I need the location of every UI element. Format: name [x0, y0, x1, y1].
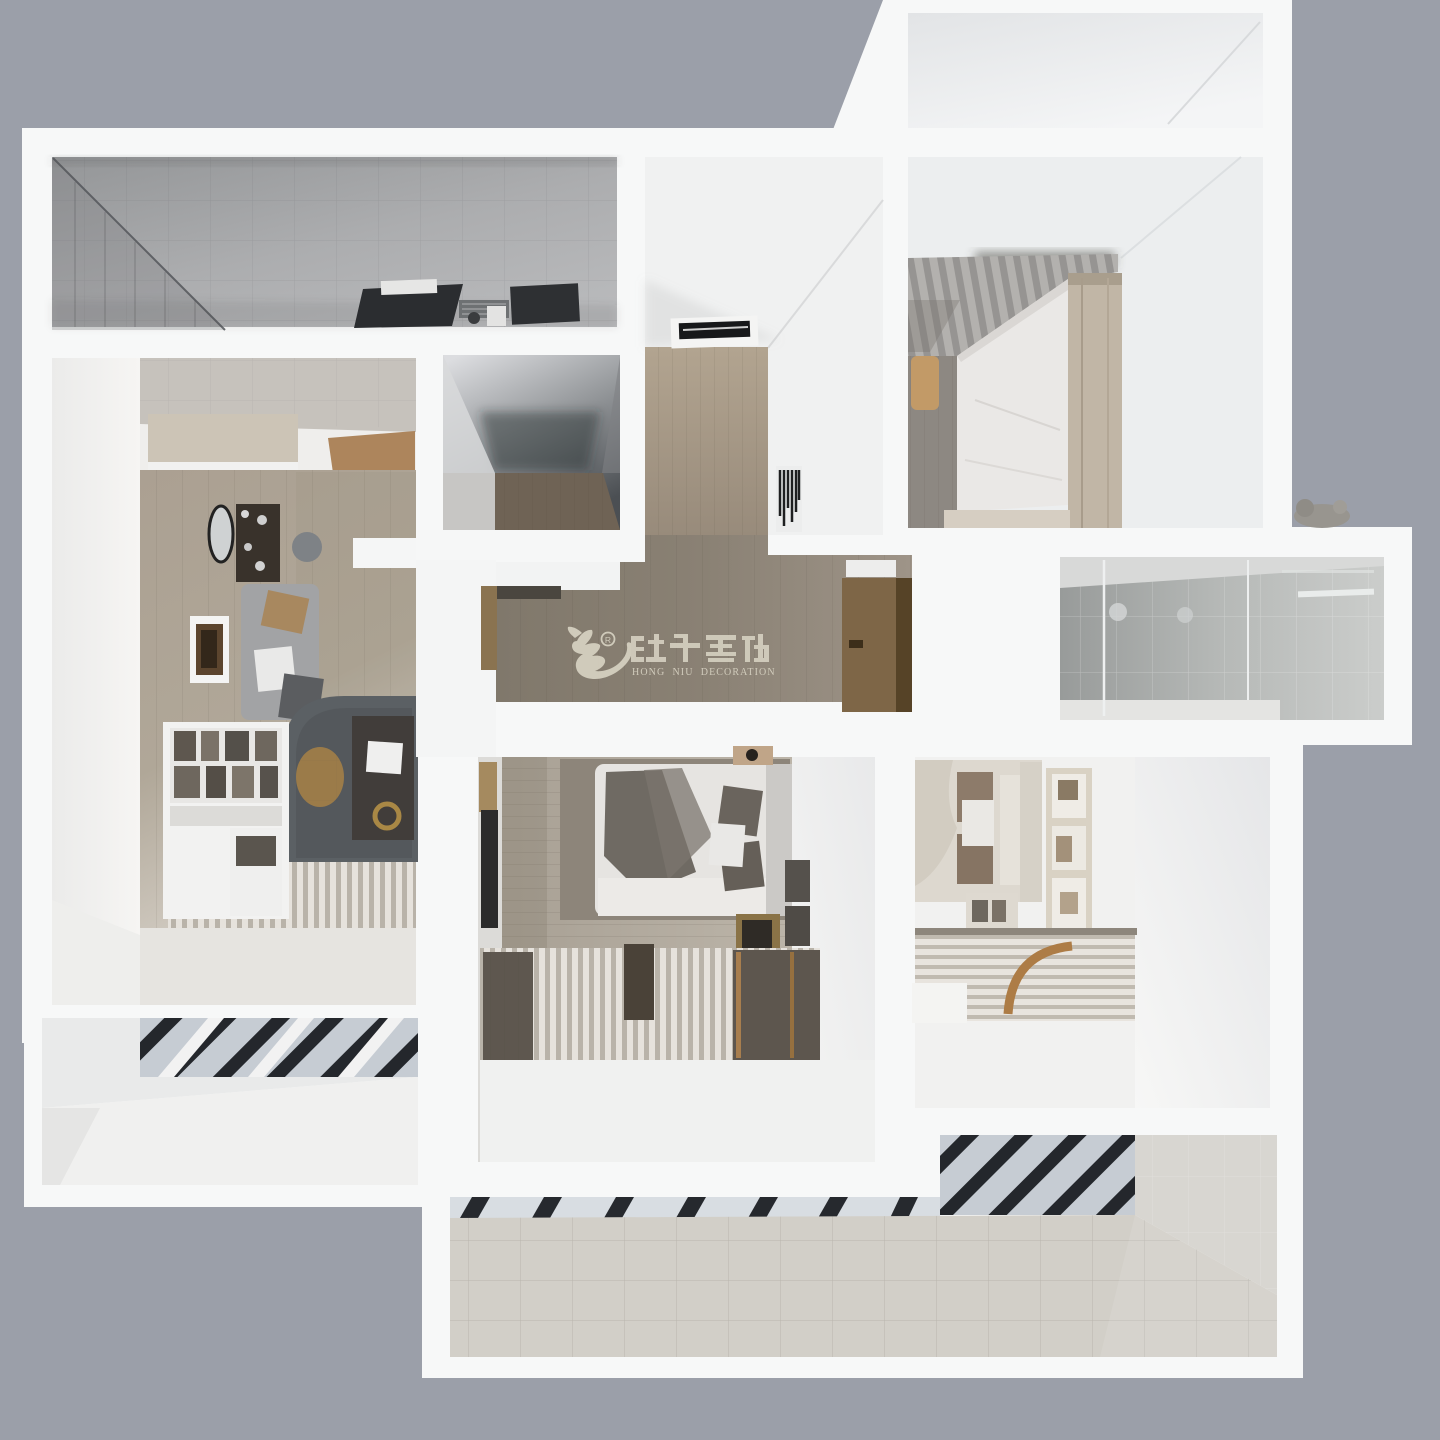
svg-text:R: R — [605, 635, 611, 645]
svg-text:HONG NIU DECORATION: HONG NIU DECORATION — [632, 667, 776, 678]
